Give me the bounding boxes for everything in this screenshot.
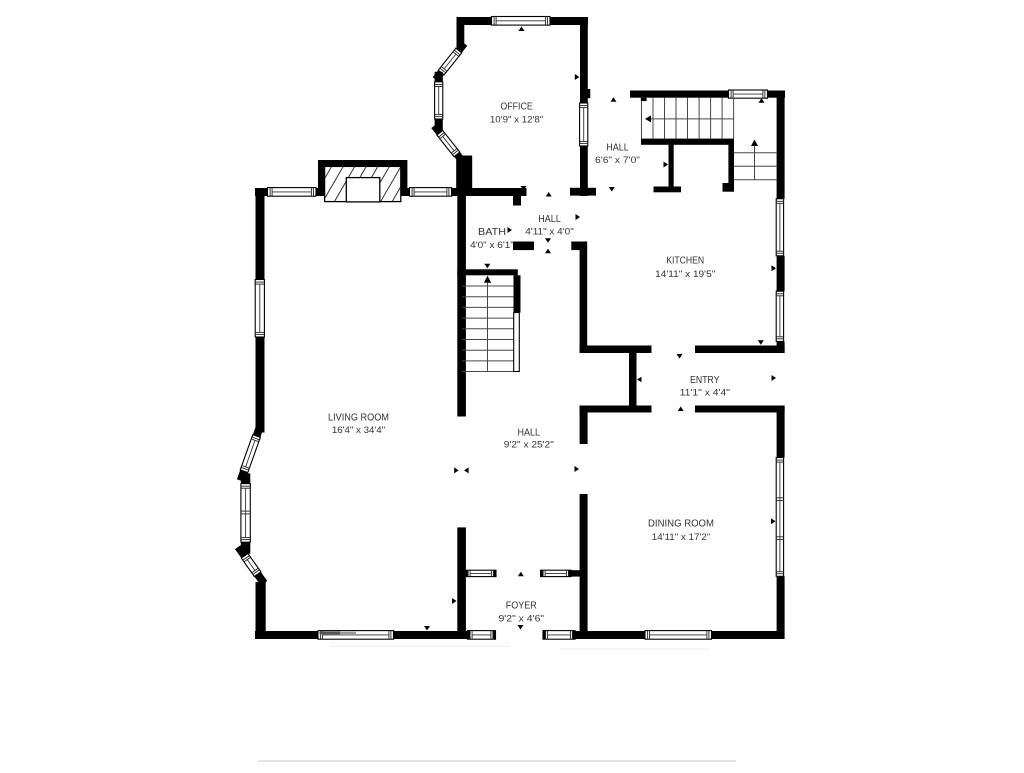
svg-text:4'11" x 4'0": 4'11" x 4'0" bbox=[525, 226, 574, 237]
svg-text:10'9" x 12'8": 10'9" x 12'8" bbox=[490, 114, 543, 125]
svg-text:ENTRY: ENTRY bbox=[690, 375, 720, 386]
svg-text:BATH: BATH bbox=[478, 227, 506, 238]
svg-text:9'2" x 4'6": 9'2" x 4'6" bbox=[499, 612, 545, 623]
svg-text:DINING ROOM: DINING ROOM bbox=[648, 519, 714, 530]
svg-text:HALL: HALL bbox=[606, 142, 629, 153]
svg-text:16'4" x 34'4": 16'4" x 34'4" bbox=[332, 424, 385, 435]
svg-text:KITCHEN: KITCHEN bbox=[666, 256, 704, 267]
svg-text:14'11" x 19'5": 14'11" x 19'5" bbox=[655, 268, 715, 279]
svg-text:FOYER: FOYER bbox=[506, 601, 537, 612]
svg-text:4'0" x 6'1": 4'0" x 6'1" bbox=[470, 239, 514, 250]
svg-text:6'6" x 7'0": 6'6" x 7'0" bbox=[595, 154, 640, 165]
svg-text:14'11" x 17'2": 14'11" x 17'2" bbox=[652, 531, 711, 542]
svg-text:11'1" x 4'4": 11'1" x 4'4" bbox=[680, 387, 730, 398]
svg-text:HALL: HALL bbox=[518, 428, 541, 439]
svg-text:LIVING ROOM: LIVING ROOM bbox=[328, 413, 389, 424]
svg-text:9'2" x 25'2": 9'2" x 25'2" bbox=[504, 438, 554, 449]
svg-text:OFFICE: OFFICE bbox=[500, 102, 533, 113]
svg-text:HALL: HALL bbox=[538, 214, 561, 225]
